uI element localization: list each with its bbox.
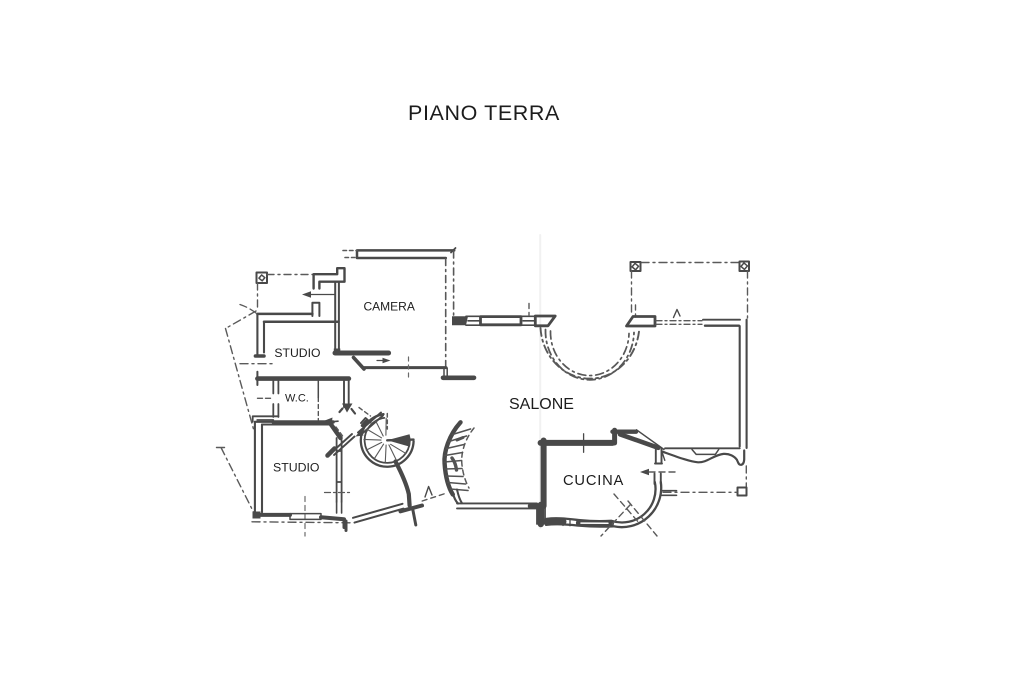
svg-text:STUDIO: STUDIO xyxy=(274,346,320,360)
svg-text:PIANO TERRA: PIANO TERRA xyxy=(408,101,560,125)
svg-text:W.C.: W.C. xyxy=(285,393,309,405)
svg-text:CAMERA: CAMERA xyxy=(364,299,415,313)
svg-text:STUDIO: STUDIO xyxy=(273,461,319,475)
svg-text:SALONE: SALONE xyxy=(509,396,574,413)
svg-text:CUCINA: CUCINA xyxy=(563,473,624,489)
